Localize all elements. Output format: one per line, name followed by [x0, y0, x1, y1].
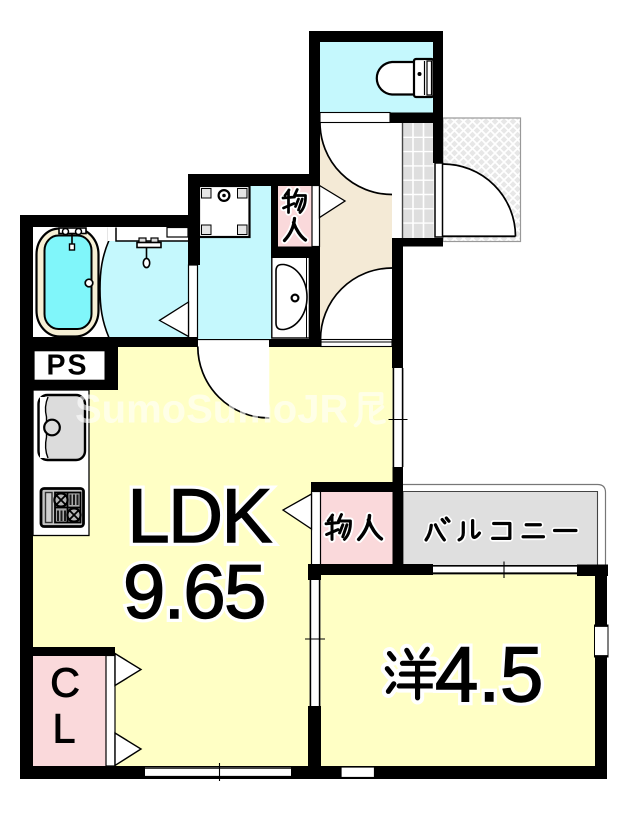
svg-text:PS: PS: [47, 350, 89, 382]
svg-text:LDK: LDK: [127, 474, 271, 559]
svg-text:L: L: [53, 706, 76, 752]
svg-text:9.65: 9.65: [123, 550, 265, 635]
svg-text:SumoSumoJR: SumoSumoJR: [75, 388, 348, 432]
svg-text:4.5: 4.5: [435, 630, 543, 718]
svg-text:C: C: [50, 660, 80, 706]
